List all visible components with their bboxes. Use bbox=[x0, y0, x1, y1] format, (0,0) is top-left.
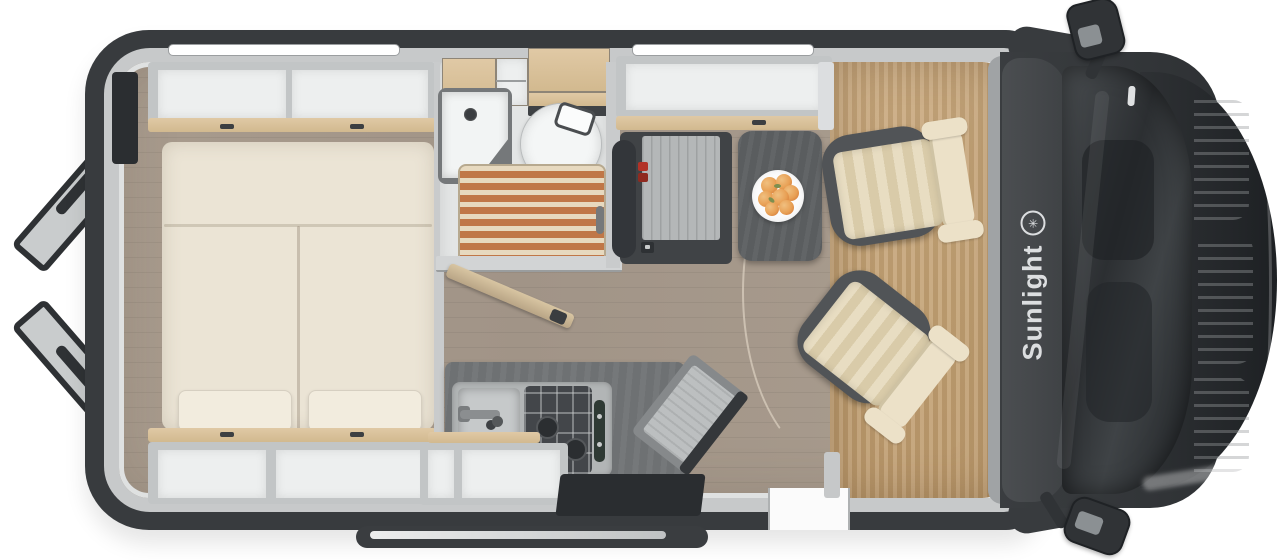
swivel-seat-driver bbox=[814, 106, 1001, 267]
bathroom-shelf-wood-right bbox=[528, 48, 610, 92]
boiler-cylinder bbox=[612, 140, 636, 258]
overhead-cabinet-top-wood-edge bbox=[148, 118, 436, 132]
brand-logo-text: Sunlight bbox=[1018, 244, 1049, 360]
cabinet-handle bbox=[350, 124, 364, 129]
overhead-cabinet-bottom-compartment-left bbox=[158, 450, 266, 498]
kitchen-shelf-compartment-left bbox=[428, 450, 454, 498]
peach bbox=[765, 202, 779, 216]
bed-pillow-left bbox=[178, 390, 292, 432]
rear-door-seam bbox=[112, 72, 138, 164]
roof-antenna bbox=[1127, 86, 1135, 106]
shower-teak-floor bbox=[458, 164, 606, 264]
fridge-latch-red-upper bbox=[638, 162, 648, 171]
kitchen-faucet-knob bbox=[492, 416, 503, 427]
overhead-cabinet-dinette-wood-edge bbox=[616, 116, 832, 130]
bed-pillow-right bbox=[308, 390, 422, 432]
brand-logo: Sunlight ✳ bbox=[1000, 150, 1066, 420]
hob-control-knob bbox=[597, 442, 602, 447]
overhead-cabinet-dinette-compartment bbox=[626, 64, 822, 110]
mattress-seam bbox=[297, 226, 300, 430]
kitchen-shelf-wood-edge bbox=[428, 432, 540, 443]
fridge-foot-latch-dot bbox=[645, 245, 650, 249]
roof-window-front bbox=[632, 44, 814, 56]
entry-step-well bbox=[555, 474, 705, 516]
cabinet-end-wall bbox=[818, 62, 834, 130]
fridge-latch-red-lower bbox=[638, 173, 648, 182]
sliding-door-rail-track bbox=[370, 531, 666, 539]
sink-faucet bbox=[464, 108, 477, 121]
fruit-leaf bbox=[774, 184, 781, 188]
cabinet-handle bbox=[220, 124, 234, 129]
overhead-cabinet-top-compartment-left bbox=[158, 70, 286, 118]
floorplan-canvas: Sunlight ✳ bbox=[0, 0, 1280, 560]
dashboard-silhouette bbox=[1086, 282, 1152, 422]
duvet-fold-seam bbox=[164, 224, 432, 227]
cabinet-handle bbox=[752, 120, 766, 125]
cabinet-handle bbox=[220, 432, 234, 437]
overhead-cabinet-bottom-wood-edge bbox=[148, 428, 436, 442]
bathroom-wall-handle bbox=[596, 206, 604, 234]
overhead-cabinet-top-compartment-right bbox=[292, 70, 428, 118]
roof-window-rear bbox=[168, 44, 400, 56]
hob-control-strip bbox=[594, 400, 605, 462]
nose-highlight bbox=[1238, 118, 1272, 454]
seat-cushion bbox=[832, 138, 945, 241]
hob-control-knob bbox=[597, 414, 602, 419]
peach bbox=[779, 200, 794, 215]
flower-asterisk-icon: ✳ bbox=[1021, 210, 1046, 235]
kitchen-shelf-compartment-right bbox=[462, 450, 560, 498]
cab-floor-edge-wall bbox=[824, 452, 840, 498]
fridge-ribbed-door bbox=[642, 136, 720, 240]
brand-logo-text-group: Sunlight ✳ bbox=[1018, 210, 1049, 360]
overhead-cabinet-bottom-compartment-right bbox=[276, 450, 428, 498]
cabinet-handle bbox=[350, 432, 364, 437]
fruit-plate bbox=[752, 170, 804, 222]
shelf-divider bbox=[496, 80, 526, 82]
